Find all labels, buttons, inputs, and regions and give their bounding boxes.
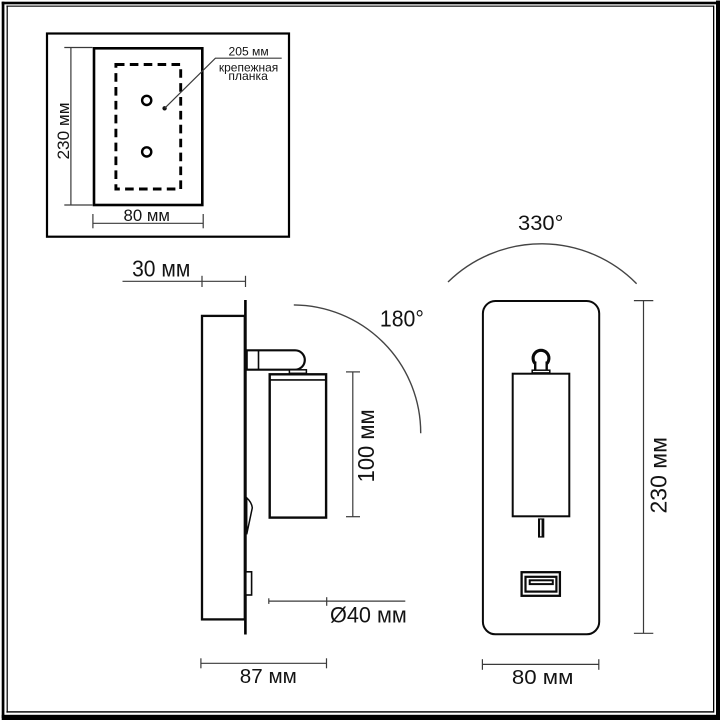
svg-text:87 мм: 87 мм (240, 666, 297, 688)
svg-text:Ø40 мм: Ø40 мм (330, 603, 407, 628)
svg-text:100 мм: 100 мм (353, 409, 379, 482)
svg-text:230 мм: 230 мм (645, 437, 671, 513)
svg-text:30 мм: 30 мм (132, 255, 190, 281)
svg-text:планка: планка (228, 69, 268, 83)
svg-text:80 мм: 80 мм (512, 666, 574, 689)
svg-text:180°: 180° (380, 305, 424, 331)
svg-text:80 мм: 80 мм (124, 206, 170, 225)
svg-text:205 мм: 205 мм (229, 45, 269, 59)
svg-text:330°: 330° (518, 210, 563, 235)
svg-text:230 мм: 230 мм (55, 103, 73, 160)
